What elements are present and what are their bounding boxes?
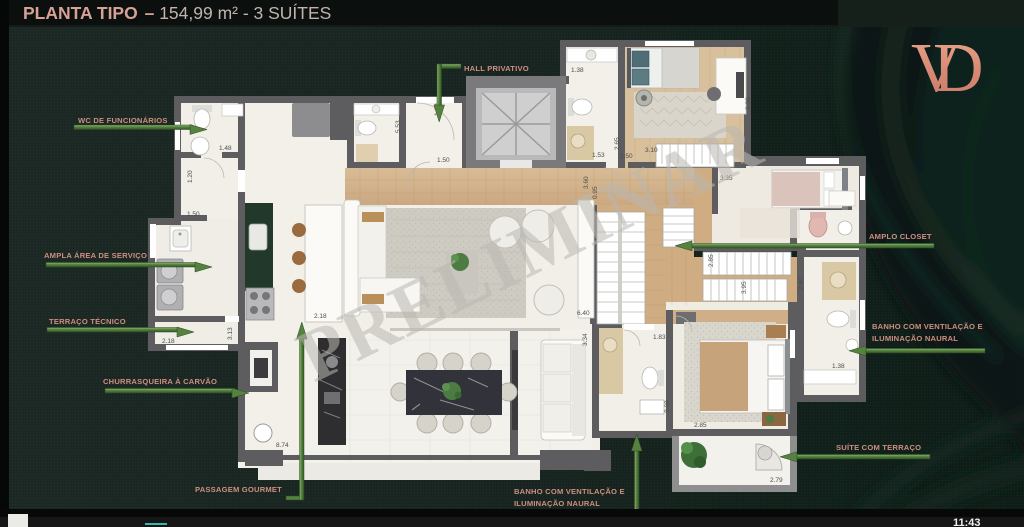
svg-text:1.83: 1.83 (653, 334, 666, 341)
svg-text:5.53: 5.53 (395, 120, 402, 133)
svg-text:11:43: 11:43 (953, 517, 981, 527)
svg-text:2.68: 2.68 (664, 400, 671, 413)
svg-text:CHURRASQUEIRA À CARVÃO: CHURRASQUEIRA À CARVÃO (103, 377, 217, 386)
svg-text:1.50: 1.50 (187, 211, 200, 218)
svg-text:2.65: 2.65 (614, 137, 621, 150)
svg-text:2.40: 2.40 (798, 277, 805, 290)
svg-text:8.74: 8.74 (276, 442, 289, 449)
svg-text:1.48: 1.48 (219, 145, 232, 152)
svg-text:TERRAÇO TÉCNICO: TERRAÇO TÉCNICO (49, 317, 126, 326)
svg-text:3.95: 3.95 (741, 281, 748, 294)
svg-text:3.13: 3.13 (227, 327, 234, 340)
svg-text:AMPLA ÁREA DE SERVIÇO: AMPLA ÁREA DE SERVIÇO (44, 251, 147, 260)
svg-text:SUÍTE COM TERRAÇO: SUÍTE COM TERRAÇO (836, 443, 921, 452)
svg-text:6.40: 6.40 (577, 310, 590, 317)
svg-text:WC DE FUNCIONÁRIOS: WC DE FUNCIONÁRIOS (78, 116, 168, 125)
svg-text:1.38: 1.38 (832, 363, 845, 370)
svg-text:BANHO COM VENTILAÇÃO E: BANHO COM VENTILAÇÃO E (872, 322, 983, 331)
svg-text:D: D (933, 30, 984, 107)
svg-text:3.00: 3.00 (745, 97, 752, 110)
svg-text:1.38: 1.38 (571, 67, 584, 74)
svg-text:2.85: 2.85 (694, 422, 707, 429)
svg-text:BANHO COM VENTILAÇÃO E: BANHO COM VENTILAÇÃO E (514, 487, 625, 496)
svg-text:1.53: 1.53 (592, 152, 605, 159)
svg-text:PLANTA TIPO – 154,99 m² - 3 SU: PLANTA TIPO – 154,99 m² - 3 SUÍTES (23, 3, 331, 23)
svg-text:ILUMINAÇÃO NAURAL: ILUMINAÇÃO NAURAL (872, 334, 958, 343)
svg-text:1.50: 1.50 (437, 157, 450, 164)
svg-text:ILUMINAÇÃO NAURAL: ILUMINAÇÃO NAURAL (514, 499, 600, 508)
svg-text:PASSAGEM GOURMET: PASSAGEM GOURMET (195, 485, 282, 494)
svg-text:AMPLO CLOSET: AMPLO CLOSET (869, 232, 932, 241)
svg-text:2.18: 2.18 (162, 338, 175, 345)
svg-text:2.85: 2.85 (708, 254, 715, 267)
svg-text:HALL PRIVATIVO: HALL PRIVATIVO (464, 64, 529, 73)
svg-text:2.79: 2.79 (770, 477, 783, 484)
svg-text:3.34: 3.34 (582, 333, 589, 346)
svg-text:1.20: 1.20 (187, 170, 194, 183)
